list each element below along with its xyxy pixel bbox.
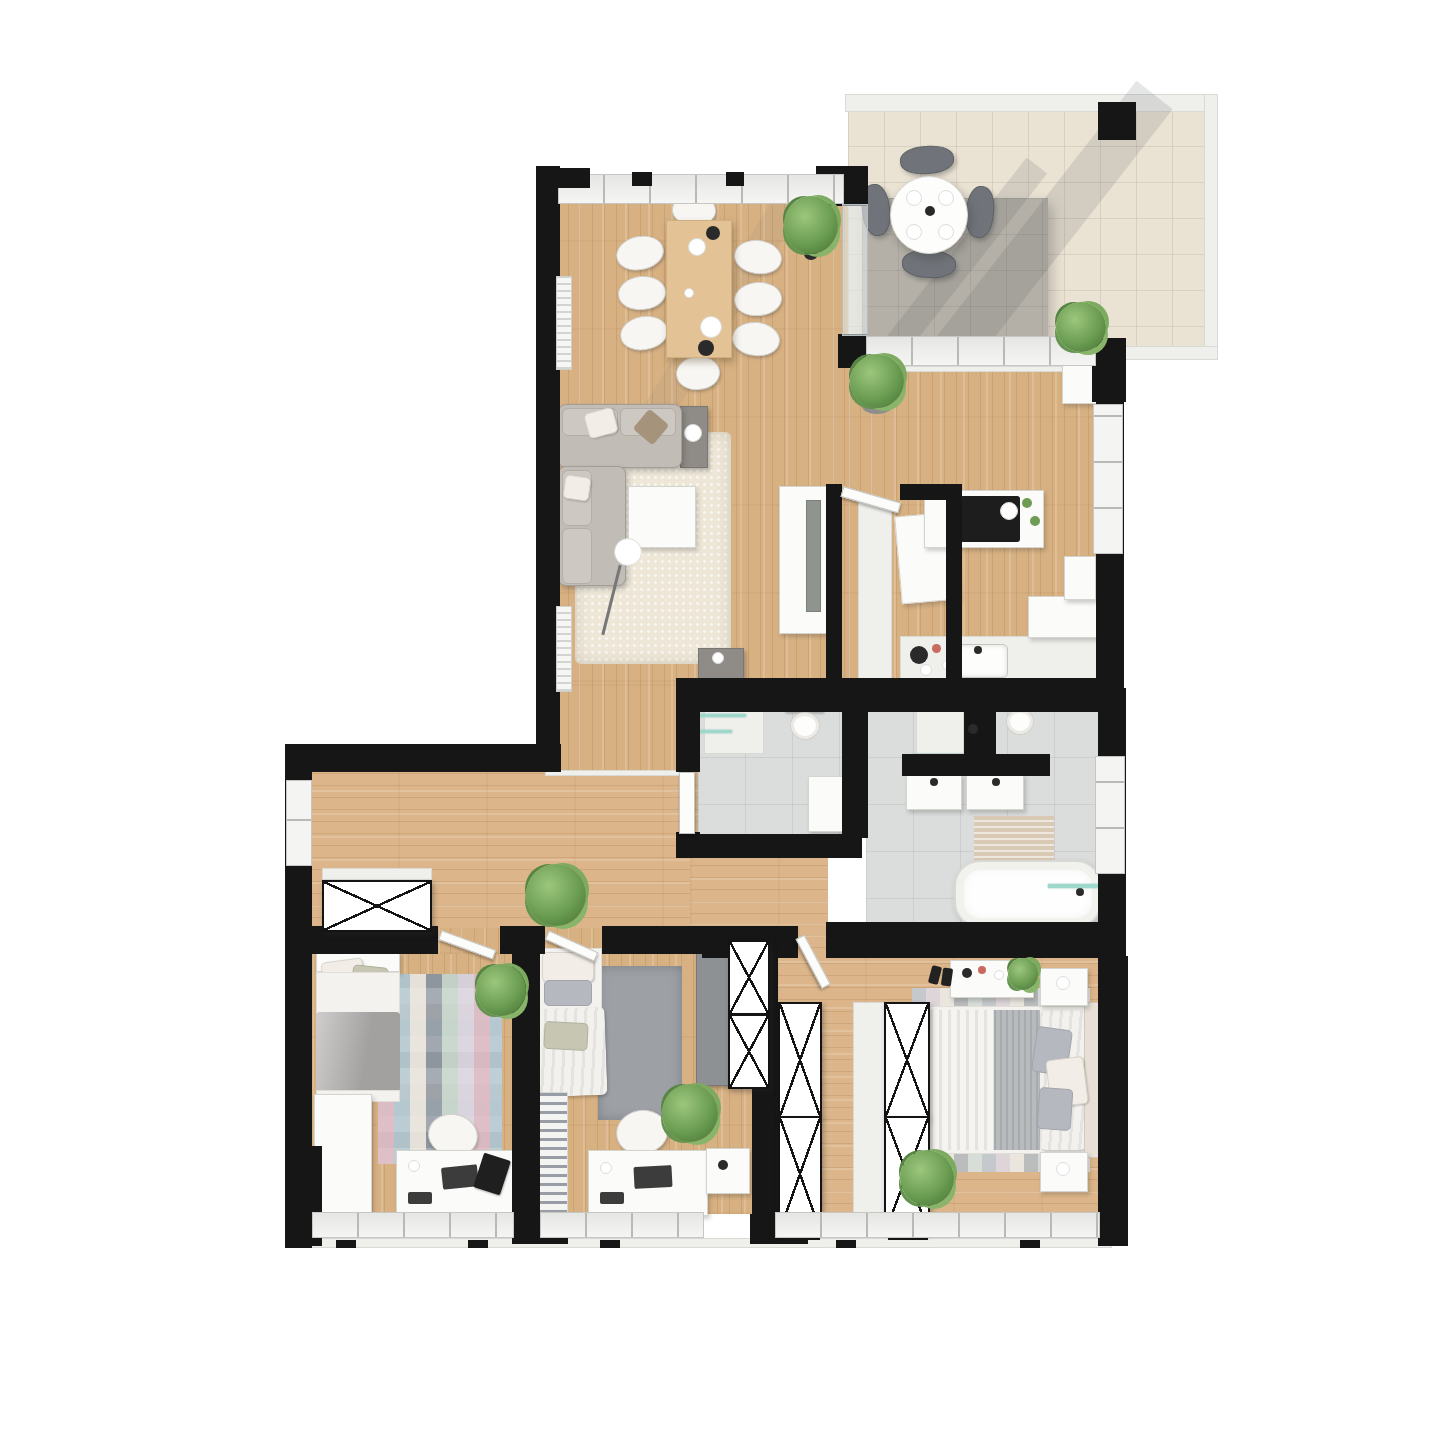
balcony-parapet-right [1204,94,1218,356]
bed2-wardrobe-x-lower [728,1014,770,1089]
wall-pillar-topright [1092,338,1126,402]
dining-plate-2 [700,316,722,338]
radiator-living-upper [556,276,572,370]
tv-panel [779,486,831,634]
hall-threshold [545,770,693,776]
bed1-desk-lamp [408,1160,420,1172]
glass-strip-balcony [842,204,868,336]
tv-screen [806,500,821,612]
window-top-mullion-b [632,172,652,186]
bathtub-glass-shelf [1048,884,1098,888]
shower1-glass-shelf-1 [700,714,746,717]
master-pillow-gray-2 [1037,1087,1074,1131]
wall-master-right [1098,956,1128,1246]
balcony-plate-4 [938,224,954,240]
sink-left-faucet [930,778,938,786]
bed2-plant [662,1084,718,1142]
bed2-desk-books [600,1192,624,1204]
window-tab-1 [336,1240,356,1248]
balcony-plate-1 [906,190,922,206]
entry-core-left-bar [826,484,842,686]
dressing-plant [1008,958,1038,990]
shower2-head [968,724,978,734]
wall-bath2-stub-h [902,754,1050,776]
balcony-pillar [1098,102,1136,140]
master-closet-side-panel [853,1002,885,1230]
dressing-cosmetic-2 [978,966,986,974]
bed2-laptop [633,1165,672,1189]
bed2-pillow-gray [544,980,592,1006]
hall-wardrobe-top [322,868,432,880]
window-tab-5 [1020,1240,1040,1248]
master-bed-sheet [930,1010,994,1150]
dining-cup-dark-1 [706,226,720,240]
shower1-glass-shelf-2 [700,730,732,733]
balcony-plate-2 [938,190,954,206]
bed2-duvet [534,1007,607,1097]
bed1-plant [476,964,526,1016]
window-bedroom2-bottom [540,1212,704,1238]
corridor-floor [690,856,828,926]
bed2-side-table [706,1148,750,1194]
bed2-wardrobe-x-upper [728,940,770,1015]
window-top-pillar-a [556,168,590,188]
wall-bath1-left-upper [676,678,700,772]
window-kitchen-right [1093,404,1123,554]
nightstand-bottom-lamp [1056,1162,1070,1176]
bath-mat [974,816,1054,864]
bed2-blanket-sage [543,1021,588,1051]
window-tab-3 [600,1240,620,1248]
wall-master-top-b [856,926,1126,958]
window-bath-right [1095,756,1125,874]
sofa-pillow-white-2 [562,474,591,501]
master-wardrobe2-x-upper [884,1002,930,1118]
balcony-door-plant [850,354,904,408]
kitchen-sink [956,644,1008,678]
floor-plan [0,0,1440,1440]
window-master-bottom [775,1212,1100,1238]
dressing-cosmetic-3 [994,970,1004,980]
bathroom1-door [679,772,695,834]
window-tab-4 [836,1240,856,1248]
floor-lamp-shade [614,538,642,566]
window-hall-left [286,780,312,866]
balcony-centerpiece [925,206,935,216]
bed1-mattress [316,972,400,1014]
hall-plant [526,864,586,926]
bathtub-drain [1076,888,1084,896]
bed2-desk-lamp [600,1162,612,1174]
window-tab-2 [468,1240,488,1248]
shoe-cabinet-item [712,652,724,664]
wall-bath-divider [842,708,868,838]
bed2-shelf [538,1092,568,1214]
master-bed-runner [994,1010,1040,1150]
entry-core-right-bar [946,484,962,688]
sink-right-faucet [992,778,1000,786]
window-top-mullion-c [726,172,744,186]
balcony-plate-3 [906,224,922,240]
dining-cup-dark-2 [698,340,714,356]
sofa-side-lamp [684,424,702,442]
dining-candles [684,288,694,298]
master-wardrobe1-x-upper [778,1002,822,1118]
dressing-cosmetic-1 [962,968,972,978]
kitchen-veg-2 [1030,516,1040,526]
entry-core-column [858,500,892,686]
wall-hall-top [285,744,561,772]
coffee-table [628,486,696,548]
kitchen-dish-red [932,644,941,653]
wall-bath1-bottom [676,834,862,858]
bed1-duvet [316,1012,400,1092]
bed1-desk-books [408,1192,432,1204]
wall-mid-horizontal [688,678,1124,712]
sofa-left-cushion-2 [562,528,592,584]
radiator-living-lower [556,606,572,692]
living-hall-connector-floor [556,682,690,774]
kitchen-dish-white-1 [920,664,932,676]
window-bedroom1-bottom [312,1212,514,1238]
master-plant [900,1150,954,1206]
window-sill-bottom [306,1238,1112,1248]
kitchen-island-faucet [1000,502,1018,520]
kitchen-cabinet [1028,596,1098,638]
kitchen-side-cabinet [1064,556,1096,600]
kitchen-dish-dark [910,646,928,664]
kitchen-veg-1 [1022,498,1032,508]
balcony-plant [1056,302,1106,352]
bed2-dresser [696,938,730,1086]
wall-bedrooms-top-c [602,926,702,954]
floor-plan-layers [0,0,1440,1440]
nightstand-top-lamp [1056,976,1070,990]
bed1-wardrobe [314,1094,372,1214]
hall-wardrobe [322,880,432,932]
bed2-side-table-item [718,1160,728,1170]
kitchen-faucet [974,646,982,654]
dining-plant [784,196,838,254]
dining-plate-1 [688,238,706,256]
